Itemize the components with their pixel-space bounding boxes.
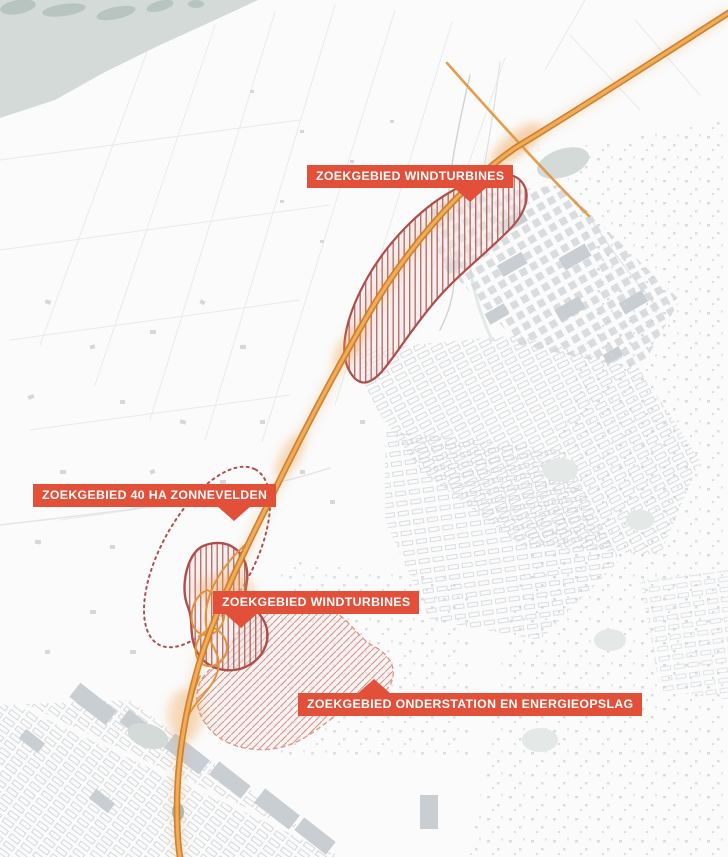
map-label-text: ZOEKGEBIED WINDTURBINES (316, 169, 504, 183)
map-label-windturbines-south: ZOEKGEBIED WINDTURBINES (213, 591, 419, 614)
map-canvas (0, 0, 728, 857)
map-label-onderstation: ZOEKGEBIED ONDERSTATION EN ENERGIEOPSLAG (298, 693, 642, 716)
map-label-text: ZOEKGEBIED 40 HA ZONNEVELDEN (42, 488, 267, 502)
label-pointer-up-icon (357, 679, 391, 694)
map-label-text: ZOEKGEBIED WINDTURBINES (222, 595, 410, 609)
map-label-windturbines-north: ZOEKGEBIED WINDTURBINES (307, 165, 513, 188)
label-pointer-down-icon (453, 187, 487, 202)
map-label-text: ZOEKGEBIED ONDERSTATION EN ENERGIEOPSLAG (307, 697, 633, 711)
label-pointer-down-icon (224, 613, 258, 628)
map-label-zonnevelden: ZOEKGEBIED 40 HA ZONNEVELDEN (33, 484, 276, 507)
label-pointer-down-icon (217, 506, 251, 521)
planning-map: ZOEKGEBIED WINDTURBINES ZOEKGEBIED 40 HA… (0, 0, 728, 857)
